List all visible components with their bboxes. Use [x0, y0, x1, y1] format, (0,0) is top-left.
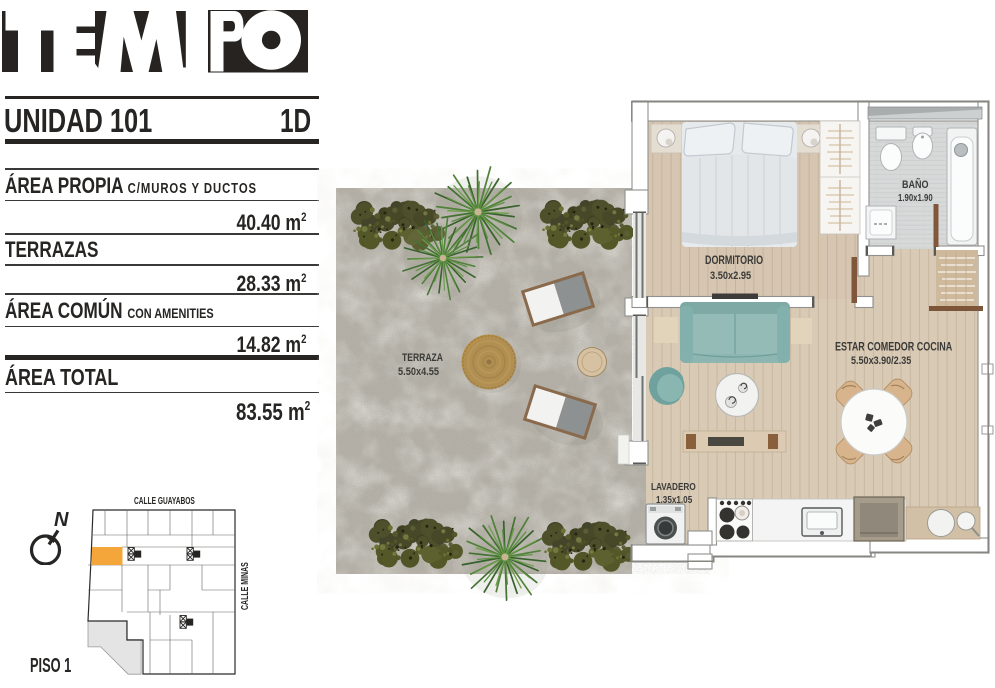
- svg-text:ESTAR COMEDOR COCINA: ESTAR COMEDOR COCINA: [835, 340, 952, 354]
- svg-text:BAÑO: BAÑO: [902, 177, 929, 191]
- svg-text:5.50x4.55: 5.50x4.55: [398, 366, 439, 378]
- svg-text:1.35x1.05: 1.35x1.05: [656, 494, 692, 505]
- svg-text:TERRAZA: TERRAZA: [402, 352, 443, 364]
- svg-text:1.90x1.90: 1.90x1.90: [898, 192, 933, 203]
- svg-text:3.50x2.95: 3.50x2.95: [710, 270, 751, 282]
- svg-text:DORMITORIO: DORMITORIO: [705, 255, 763, 267]
- svg-text:LAVADERO: LAVADERO: [651, 480, 696, 492]
- svg-text:5.50x3.90/2.35: 5.50x3.90/2.35: [851, 355, 912, 367]
